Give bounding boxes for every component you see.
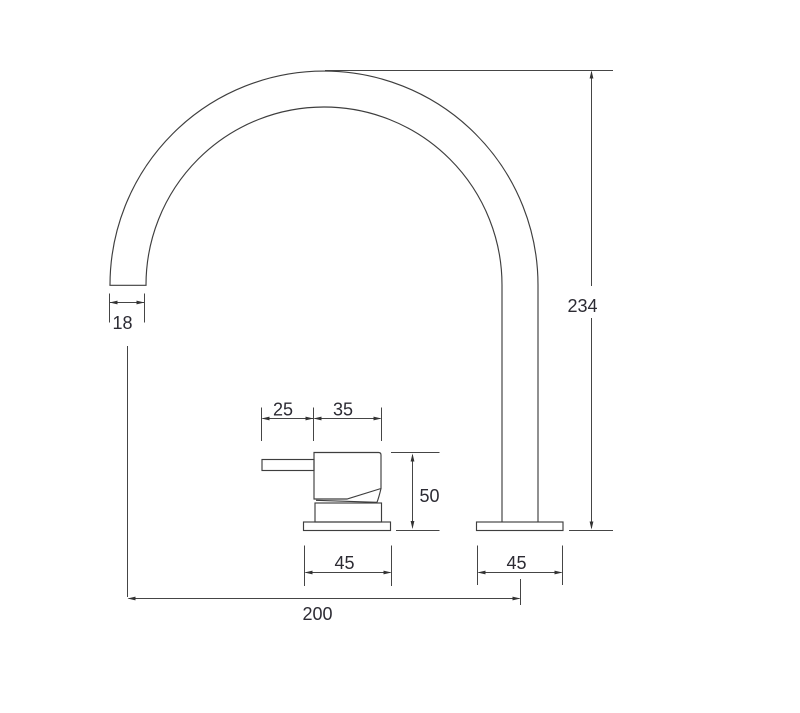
svg-text:45: 45 (334, 553, 354, 573)
svg-text:35: 35 (333, 400, 353, 420)
svg-text:234: 234 (567, 296, 597, 316)
svg-text:25: 25 (273, 400, 293, 420)
svg-text:200: 200 (302, 604, 332, 624)
svg-text:50: 50 (419, 486, 439, 506)
svg-text:18: 18 (112, 313, 132, 333)
svg-text:45: 45 (506, 553, 526, 573)
